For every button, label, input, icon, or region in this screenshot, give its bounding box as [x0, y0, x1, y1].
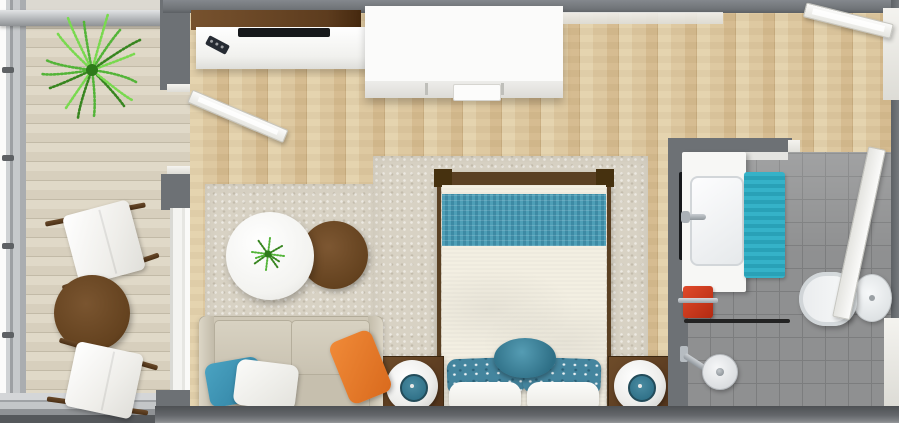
railing-post	[2, 155, 14, 161]
towel-bar	[678, 298, 718, 303]
railing-post	[2, 243, 14, 249]
vanity-unit[interactable]	[682, 152, 746, 292]
railing-post	[2, 332, 14, 338]
balcony-railing-left	[0, 0, 26, 423]
chair-seat	[64, 341, 144, 420]
wardrobe-handle	[425, 83, 428, 95]
shower-glass-screen	[684, 319, 790, 323]
door-jamb	[167, 84, 191, 92]
lamp-shade	[628, 374, 656, 402]
shower-head[interactable]	[702, 354, 738, 390]
lamp-shade	[400, 374, 428, 402]
wardrobe[interactable]	[365, 6, 563, 98]
bed-bolster-pillow	[494, 338, 556, 378]
wardrobe-handle	[501, 83, 504, 95]
lamp-finial	[638, 384, 642, 388]
bath-mat-teal[interactable]	[744, 172, 785, 278]
wall-bottom	[155, 406, 899, 423]
potted-fern-plant[interactable]	[28, 4, 156, 132]
lamp-finial	[410, 384, 414, 388]
bed-runner-teal	[442, 194, 606, 246]
wardrobe-drawer	[453, 84, 501, 101]
floor-plan-scene	[0, 0, 899, 423]
door-jamb	[167, 166, 191, 174]
table-plant[interactable]	[246, 232, 290, 276]
faucet	[684, 214, 706, 220]
bathroom-door-jamb	[884, 318, 899, 406]
throw-pillow-white	[232, 358, 299, 411]
table-lamp[interactable]	[614, 360, 666, 412]
loveseat-sofa[interactable]	[199, 316, 383, 413]
wall-pier	[160, 0, 192, 90]
baseboard	[563, 12, 723, 24]
double-bed[interactable]	[437, 172, 611, 414]
tv[interactable]	[238, 28, 330, 37]
sink-basin	[690, 176, 744, 266]
railing-post	[2, 67, 14, 73]
table-lamp[interactable]	[386, 360, 438, 412]
wall-pier	[161, 174, 190, 210]
